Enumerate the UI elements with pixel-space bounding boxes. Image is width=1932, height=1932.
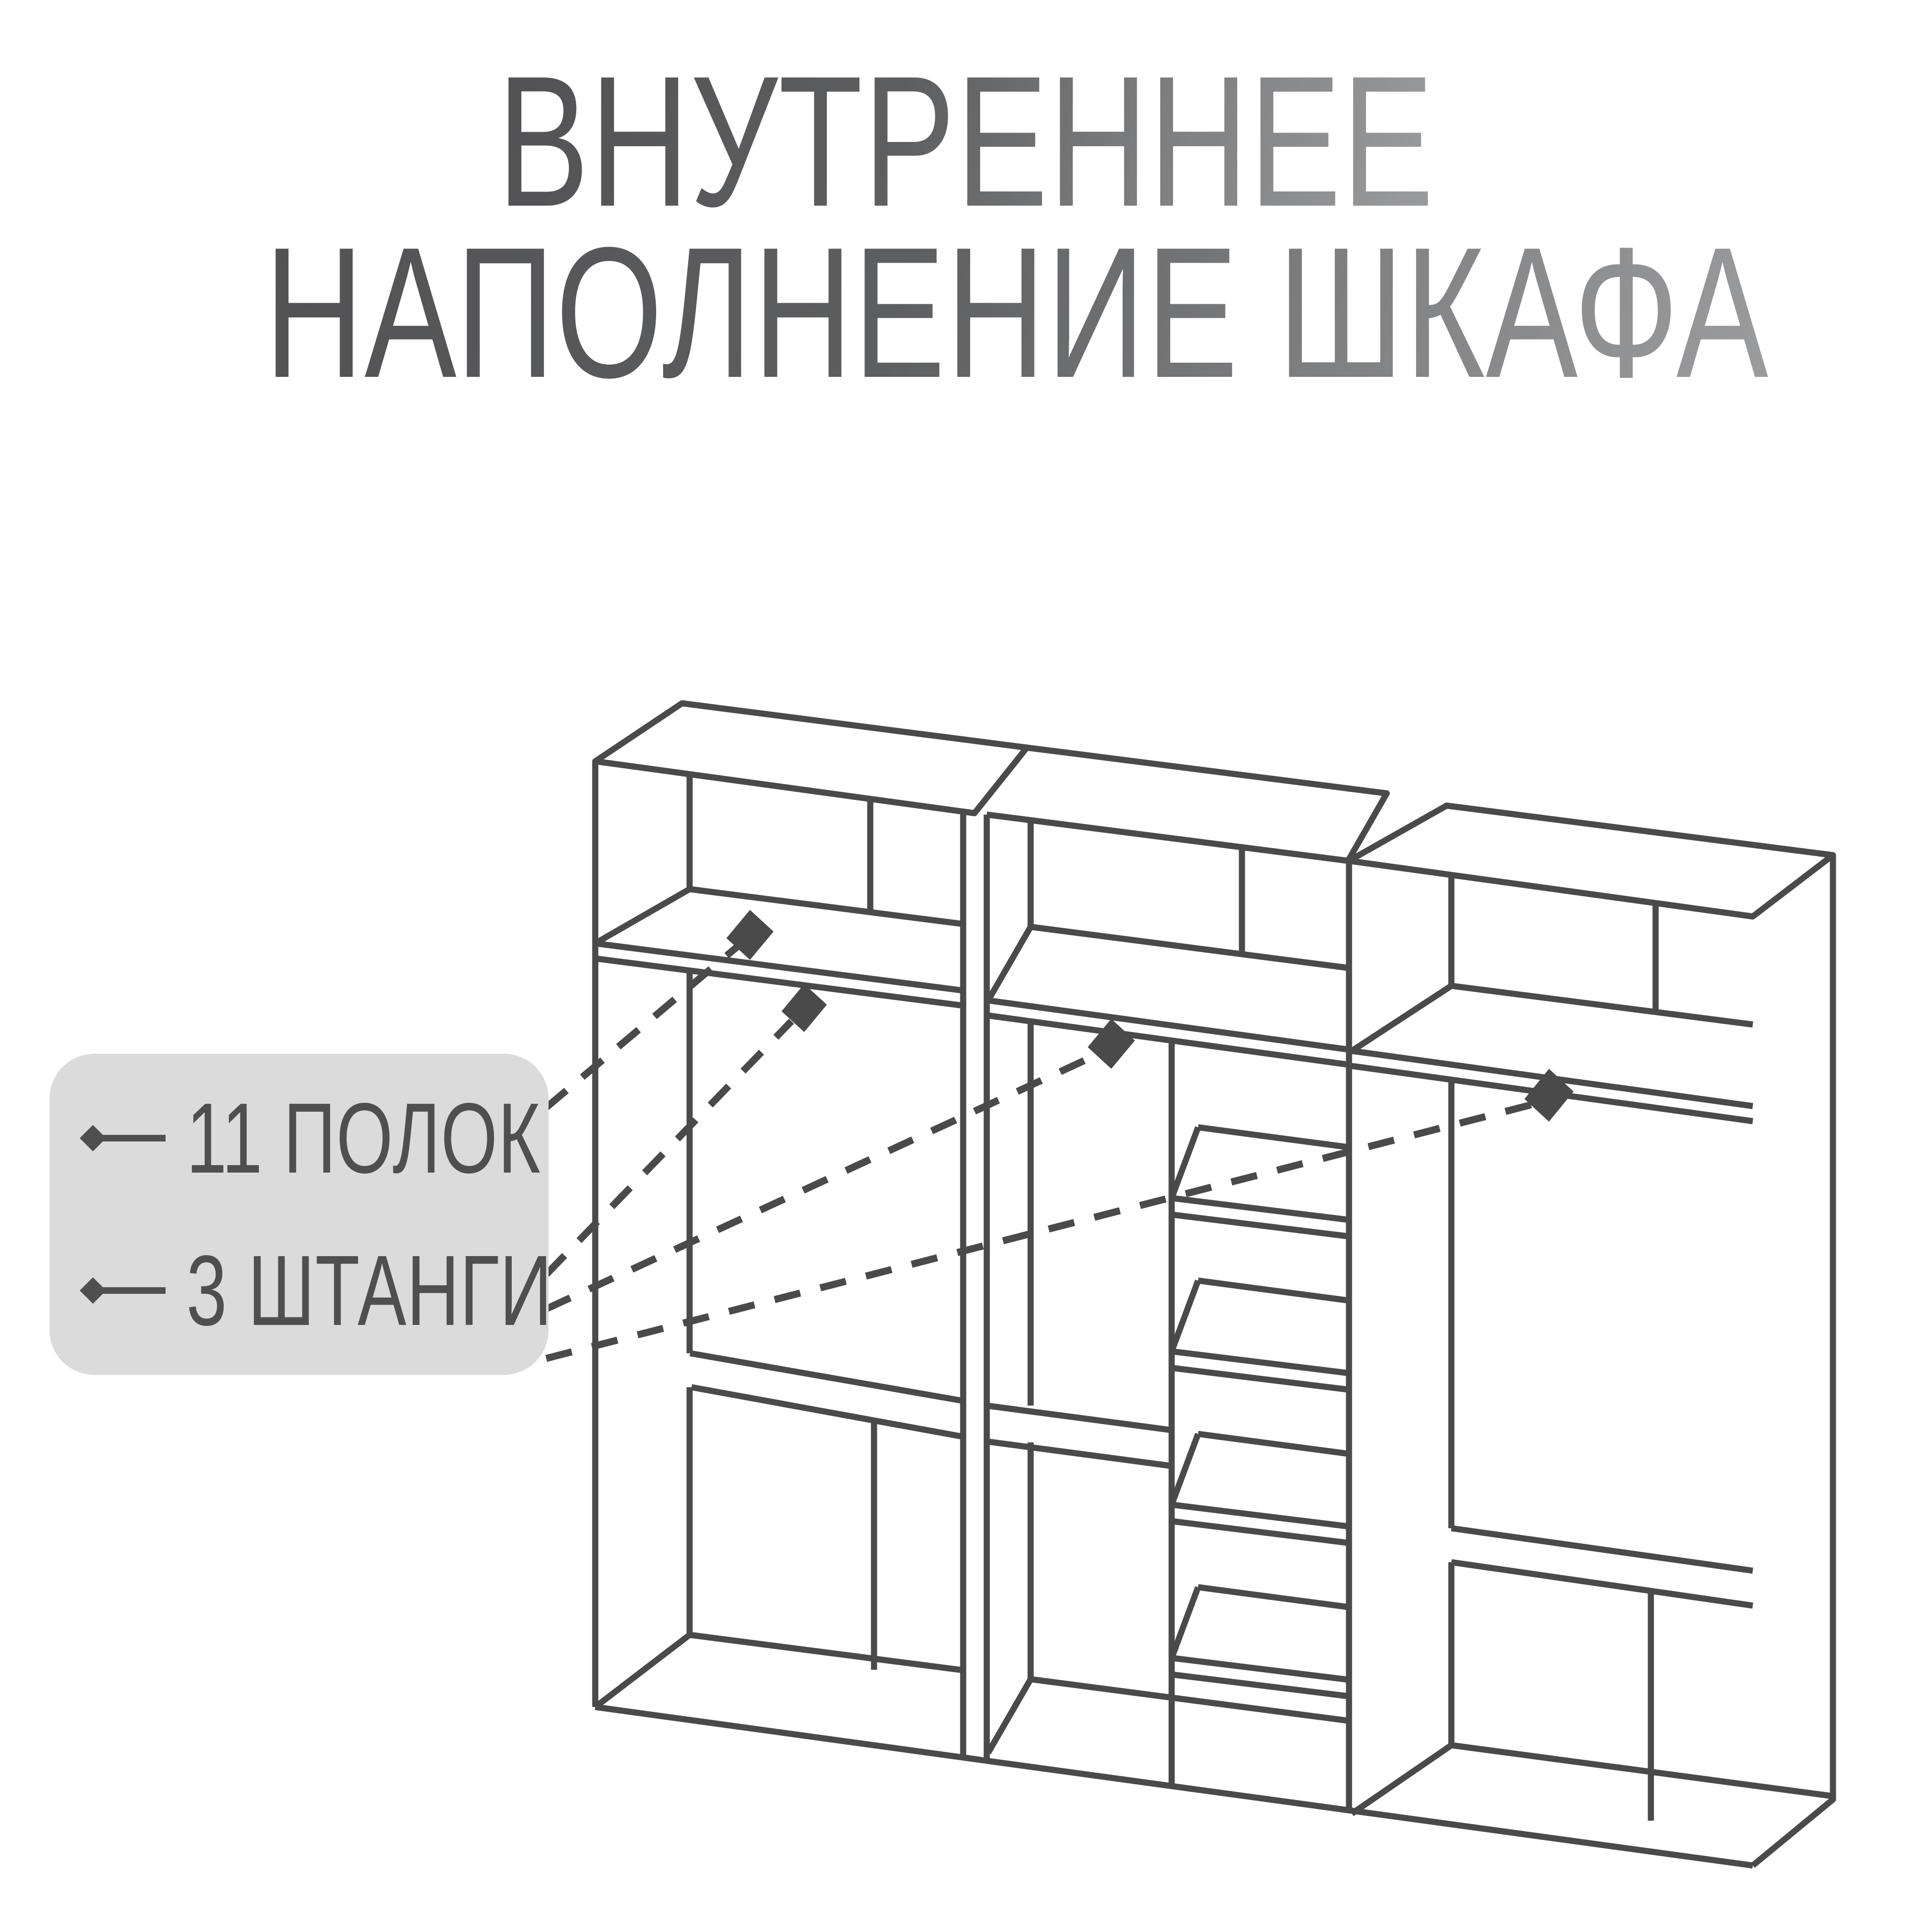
leader-rod-left: [546, 1021, 791, 1274]
module-left-interior: [595, 774, 963, 1707]
diamond-marker-rod-middle-icon: [1088, 1019, 1135, 1069]
leader-shelf-left: [546, 947, 737, 1108]
leader-rod-right: [546, 1104, 1535, 1358]
legend-item-rods: 3 ШТАНГИ: [50, 1242, 549, 1339]
legend-label-rods: 3 ШТАНГИ: [186, 1233, 552, 1348]
module-right-interior: [1352, 875, 1833, 1821]
legend-box: 11 ПОЛОК 3 ШТАНГИ: [50, 1054, 549, 1375]
legend-arrow-icon: [79, 1122, 168, 1155]
small-shelf-column: [1172, 1043, 1348, 1786]
leader-rod-middle: [546, 1054, 1098, 1309]
legend-label-shelves: 11 ПОЛОК: [186, 1081, 541, 1196]
wardrobe-diagram: [0, 0, 1932, 1932]
page: ВНУТРЕННЕЕ НАПОЛНЕНИЕ ШКАФА: [0, 0, 1932, 1932]
legend-arrow-icon: [79, 1274, 168, 1307]
legend-item-shelves: 11 ПОЛОК: [50, 1090, 549, 1187]
module-middle-interior: [987, 820, 1348, 1753]
